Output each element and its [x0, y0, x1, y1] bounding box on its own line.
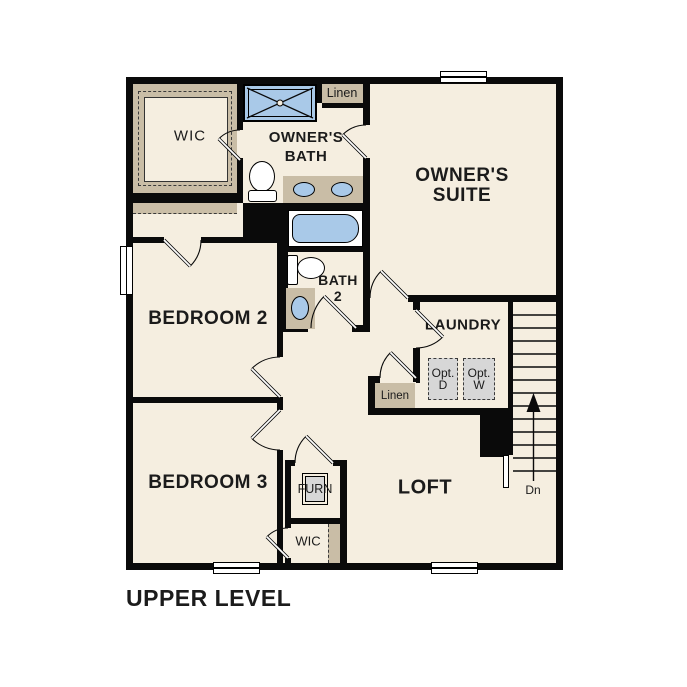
wall-segment: [285, 518, 347, 524]
wall-segment: [237, 158, 243, 203]
opt-washer-line2: W: [468, 379, 491, 391]
wall-segment: [416, 376, 420, 383]
wall-segment: [340, 518, 347, 563]
window-glass-line: [126, 247, 128, 294]
plan-title: UPPER LEVEL: [126, 585, 291, 612]
wall-segment: [340, 460, 347, 518]
window-left: [120, 246, 133, 295]
window-glass-line: [432, 567, 477, 569]
wall-segment: [363, 84, 370, 125]
label-opt-washer: Opt. W: [468, 367, 491, 391]
room-label-bedroom3: BEDROOM 3: [148, 472, 268, 494]
wall-segment: [283, 203, 370, 210]
stair-rail-wall: [508, 302, 513, 455]
room-label-furnace: FURN: [298, 482, 333, 496]
room-label-bath2: BATH 2: [318, 272, 358, 304]
window-glass-line: [441, 76, 486, 78]
wall-block-stairs: [480, 408, 508, 457]
wall-segment: [133, 397, 283, 403]
toilet-tank-owners-icon: [248, 190, 277, 202]
room-label-wic-top: WIC: [174, 128, 206, 145]
owners-suite-line1: OWNER'S: [415, 166, 509, 186]
wall-segment: [277, 243, 283, 357]
wall-segment: [285, 558, 291, 563]
wall-segment: [413, 302, 420, 310]
wall-segment: [368, 376, 380, 383]
wall-segment: [408, 295, 556, 302]
window-glass-line: [214, 567, 259, 569]
sink-icon: [293, 182, 315, 197]
bathtub-surround: [288, 210, 363, 247]
wall-segment: [322, 103, 363, 108]
window-top: [440, 71, 487, 83]
wall-segment: [363, 158, 370, 332]
wall-segment: [201, 237, 283, 243]
owners-bath-line1: OWNER'S: [269, 128, 344, 147]
stairs-down-label: Dn: [525, 483, 540, 497]
stair-railing: [503, 455, 509, 488]
sink-icon: [331, 182, 353, 197]
room-label-owners-suite: OWNER'S SUITE: [415, 166, 509, 206]
wall-segment: [285, 460, 291, 518]
owners-bath-line2: BATH: [269, 147, 344, 166]
floorplan-canvas: WIC OWNER'S BATH Linen OWNER'S SUITE BED…: [0, 0, 687, 687]
room-label-linen-hall: Linen: [381, 390, 409, 402]
shower-icon: [243, 84, 317, 122]
wall-segment: [283, 247, 363, 252]
room-label-bedroom2: BEDROOM 2: [148, 308, 268, 330]
room-label-owners-bath: OWNER'S BATH: [269, 128, 344, 166]
room-label-laundry: LAUNDRY: [425, 317, 501, 334]
wall-segment: [285, 524, 291, 528]
bath2-line2: 2: [318, 288, 358, 304]
owners-suite-line2: SUITE: [415, 186, 509, 206]
label-opt-dryer: Opt. D: [432, 367, 455, 391]
wall-segment: [352, 325, 370, 332]
room-label-loft: LOFT: [398, 477, 452, 500]
wall-segment: [133, 193, 237, 203]
sink-icon: [291, 296, 309, 320]
opt-dryer-line2: D: [432, 379, 455, 391]
wall-segment: [363, 295, 368, 302]
bedroom2-closet-shelf: [133, 203, 237, 214]
window-bottom-left: [213, 562, 260, 574]
floorplan-outer-walls: WIC OWNER'S BATH Linen OWNER'S SUITE BED…: [126, 77, 563, 570]
bathtub-icon: [292, 214, 359, 243]
room-label-wic-bottom: WIC: [295, 534, 320, 549]
room-label-linen-top: Linen: [327, 86, 358, 100]
wall-segment: [133, 237, 164, 243]
bath2-line1: BATH: [318, 272, 358, 288]
wall-segment: [317, 84, 322, 103]
wall-segment: [277, 450, 283, 563]
shower-pan: [248, 89, 312, 117]
window-bottom-right: [431, 562, 478, 574]
wall-segment: [277, 403, 283, 410]
